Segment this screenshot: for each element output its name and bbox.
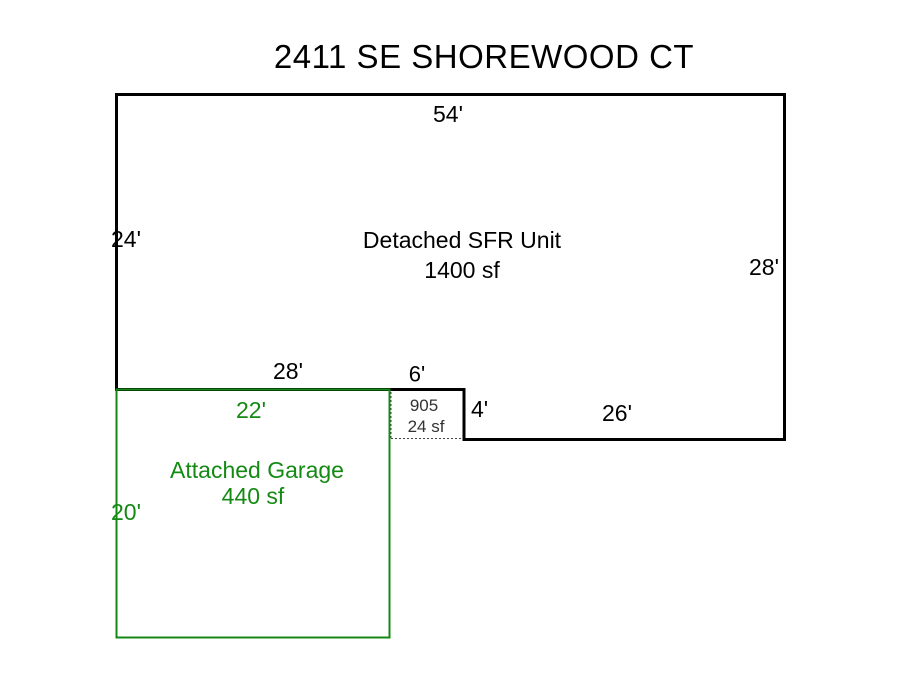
dim-top-54: 54' — [433, 101, 463, 127]
porch-code: 905 — [410, 396, 438, 416]
main-unit-area: 1400 sf — [424, 257, 499, 283]
garage-outline — [117, 390, 390, 638]
dim-garage-top-22: 22' — [236, 397, 266, 423]
dim-bottom-west-28: 28' — [273, 358, 303, 384]
dim-notch-top-6: 6' — [409, 361, 425, 386]
porch-area: 24 sf — [408, 417, 445, 437]
garage-area: 440 sf — [222, 483, 285, 509]
dim-notch-right-4: 4' — [471, 396, 488, 422]
property-sketch: 2411 SE SHOREWOOD CT 54' 24' Detached SF… — [0, 0, 900, 675]
garage-name: Attached Garage — [170, 457, 344, 483]
dim-garage-left-20: 20' — [111, 499, 141, 525]
dim-left-24: 24' — [111, 226, 141, 252]
main-unit-name: Detached SFR Unit — [363, 227, 561, 253]
dim-right-28: 28' — [749, 254, 779, 280]
dim-bottom-east-26: 26' — [602, 400, 632, 426]
